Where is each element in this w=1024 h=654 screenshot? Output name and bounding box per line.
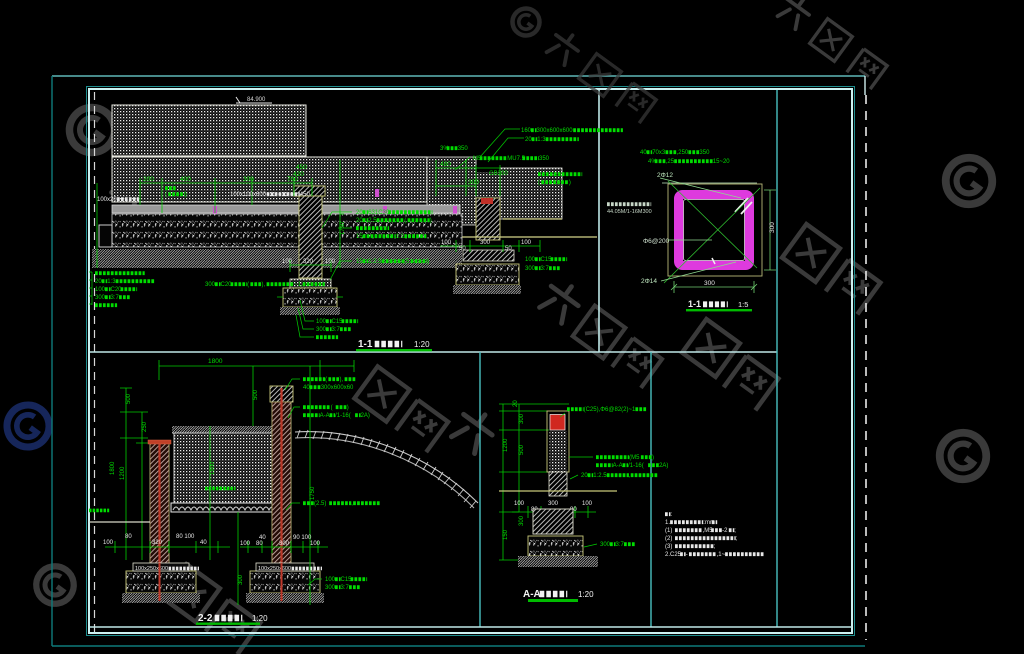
svg-text:100: 100 (325, 259, 336, 265)
svg-text:(2): (2) (665, 536, 672, 542)
svg-text:(M5: (M5 (629, 455, 640, 461)
svg-text:1-1: 1-1 (688, 299, 701, 309)
svg-text:A-A: A-A (613, 463, 623, 469)
svg-text:): ) (185, 192, 187, 198)
svg-text:-: - (686, 552, 688, 558)
svg-text:300: 300 (769, 222, 776, 233)
svg-text:350: 350 (458, 146, 469, 152)
svg-text:C15: C15 (341, 577, 353, 583)
svg-text:2Φ12: 2Φ12 (657, 172, 673, 179)
svg-text:1:1: 1:1 (396, 234, 405, 240)
svg-text:20: 20 (525, 137, 532, 143)
svg-text:(: ( (404, 218, 406, 224)
svg-text:(1): (1) (665, 528, 672, 534)
svg-text:500: 500 (253, 389, 259, 400)
svg-text:,25: ,25 (666, 159, 675, 165)
svg-text:300: 300 (205, 282, 216, 288)
svg-text:),: ), (262, 282, 266, 288)
svg-text:20: 20 (95, 279, 102, 285)
svg-text:300x600x60: 300x600x60 (321, 385, 354, 391)
svg-text:1:5: 1:5 (738, 300, 748, 309)
svg-text:480: 480 (440, 161, 451, 168)
svg-text:2A): 2A) (361, 413, 370, 419)
svg-text:3:7: 3:7 (541, 266, 550, 272)
svg-text:Φ6@200: Φ6@200 (643, 238, 670, 245)
svg-text:1:20: 1:20 (252, 614, 268, 623)
svg-text:),: ), (340, 377, 344, 383)
svg-text:20: 20 (356, 218, 363, 224)
svg-text:450: 450 (300, 192, 311, 198)
svg-text:A-A: A-A (320, 413, 330, 419)
svg-text:320: 320 (152, 540, 163, 546)
svg-text:(: ( (331, 405, 333, 411)
svg-text:80: 80 (256, 541, 263, 547)
svg-text:C15: C15 (541, 257, 553, 263)
svg-text:50: 50 (459, 246, 466, 252)
svg-text:2.C25: 2.C25 (665, 552, 682, 558)
svg-text:100: 100 (95, 287, 106, 293)
svg-text:84.900: 84.900 (247, 97, 266, 103)
svg-text:3:7: 3:7 (111, 295, 120, 301)
svg-text:1-1: 1-1 (358, 339, 373, 350)
svg-text:500: 500 (519, 444, 525, 455)
svg-text:300: 300 (243, 176, 254, 183)
svg-text:320: 320 (303, 259, 314, 265)
svg-text:300: 300 (519, 413, 525, 424)
svg-text:40: 40 (640, 150, 647, 156)
svg-text:500: 500 (126, 393, 132, 404)
svg-text:-2: -2 (722, 528, 728, 534)
svg-text:631C30: 631C30 (368, 210, 390, 216)
svg-text:3:7: 3:7 (616, 542, 625, 548)
svg-text:(: ( (165, 192, 167, 198)
svg-text:(5: (5 (404, 259, 410, 265)
svg-text:C20: C20 (221, 282, 233, 288)
svg-text:(: ( (325, 377, 327, 383)
svg-text:3:7: 3:7 (332, 327, 341, 333)
svg-text:,250: ,250 (677, 150, 689, 156)
svg-text:100: 100 (310, 541, 321, 547)
svg-text:100: 100 (521, 240, 532, 246)
svg-text:1200: 1200 (120, 466, 126, 480)
svg-text:C20: C20 (111, 287, 123, 293)
svg-text:420: 420 (293, 171, 304, 178)
svg-text:100: 100 (316, 319, 327, 325)
svg-text:300: 300 (548, 501, 559, 507)
svg-text:3:7: 3:7 (341, 585, 350, 591)
svg-text:): ) (569, 180, 571, 186)
svg-text:2A): 2A) (659, 463, 668, 469)
svg-text:300: 300 (316, 327, 327, 333)
svg-text:C15: C15 (332, 319, 344, 325)
svg-text:300: 300 (600, 542, 611, 548)
svg-text:,1~: ,1~ (717, 552, 726, 558)
svg-text:): ) (347, 405, 349, 411)
svg-text:15: 15 (356, 259, 363, 265)
svg-text:): ) (652, 455, 654, 461)
svg-text:2-2: 2-2 (198, 613, 213, 624)
svg-text:300: 300 (468, 179, 479, 186)
svg-text:70x3: 70x3 (652, 150, 666, 156)
svg-text:350: 350 (699, 150, 710, 156)
svg-text:300: 300 (704, 280, 715, 287)
svg-text:1:3: 1:3 (537, 137, 546, 143)
svg-text:100: 100 (282, 259, 293, 265)
svg-text:100x250x600: 100x250x600 (135, 566, 168, 572)
svg-text:15: 15 (356, 234, 363, 240)
svg-text:/1-16(: /1-16( (628, 463, 644, 469)
svg-text:300: 300 (480, 240, 491, 246)
svg-text:1800: 1800 (208, 358, 223, 365)
svg-text:1:3: 1:3 (107, 279, 116, 285)
svg-text:300x600x600: 300x600x600 (537, 128, 574, 134)
svg-text:20: 20 (513, 400, 519, 407)
svg-text:200: 200 (143, 176, 154, 183)
svg-text:100: 100 (582, 501, 593, 507)
svg-text:100x100x600: 100x100x600 (230, 192, 267, 198)
svg-text:20: 20 (581, 473, 588, 479)
svg-text:100: 100 (325, 577, 336, 583)
svg-text:40: 40 (303, 385, 310, 391)
svg-text:20: 20 (356, 210, 363, 216)
svg-text:300: 300 (519, 515, 525, 526)
svg-text:300: 300 (279, 541, 290, 547)
svg-text:/1-16(: /1-16( (335, 413, 351, 419)
svg-text:1800: 1800 (210, 461, 216, 475)
svg-text:): ) (430, 218, 432, 224)
svg-text:250: 250 (142, 421, 148, 432)
svg-text:100: 100 (514, 501, 525, 507)
svg-text:1:20: 1:20 (578, 590, 594, 599)
svg-text:150: 150 (503, 529, 509, 540)
svg-text:100: 100 (240, 541, 251, 547)
svg-text:1:20: 1:20 (414, 340, 430, 349)
svg-text:44.05M/1-16M300: 44.05M/1-16M300 (607, 209, 652, 215)
svg-text:(: ( (247, 282, 249, 288)
svg-text:80: 80 (125, 534, 132, 540)
svg-text:100: 100 (525, 257, 536, 263)
svg-text:(2.5): (2.5) (314, 501, 326, 507)
svg-text:100: 100 (441, 240, 452, 246)
svg-text:40: 40 (200, 540, 207, 546)
svg-text:GB300: GB300 (489, 171, 508, 177)
svg-text:50: 50 (505, 246, 512, 252)
svg-text:1750: 1750 (310, 486, 316, 500)
svg-text:(: ( (538, 180, 540, 186)
svg-text:80 100: 80 100 (176, 534, 195, 540)
svg-text:2Φ14: 2Φ14 (641, 278, 657, 285)
svg-text:160: 160 (521, 128, 532, 134)
svg-text:1.: 1. (665, 520, 670, 526)
svg-text:400: 400 (180, 176, 191, 183)
svg-text:1:2.5: 1:2.5 (368, 259, 382, 265)
svg-text:1200: 1200 (503, 438, 509, 452)
svg-text:(3): (3) (665, 544, 672, 550)
svg-text:450: 450 (296, 164, 307, 171)
svg-text:): ) (427, 259, 429, 265)
svg-text:300: 300 (95, 295, 106, 301)
svg-text:1:2.5: 1:2.5 (593, 473, 607, 479)
svg-text:300: 300 (325, 585, 336, 591)
svg-text:~1,: ~1, (294, 282, 303, 288)
svg-text:1800: 1800 (110, 461, 116, 475)
svg-text:100x250x600: 100x250x600 (258, 566, 291, 572)
svg-text:2.5: 2.5 (368, 218, 377, 224)
svg-text:100: 100 (103, 540, 114, 546)
svg-text:350: 350 (539, 156, 550, 162)
svg-text:300: 300 (525, 266, 536, 272)
svg-text:100x20: 100x20 (97, 197, 117, 203)
svg-text:300: 300 (238, 574, 244, 585)
svg-text:15~20: 15~20 (713, 159, 731, 165)
svg-text:A-A: A-A (523, 589, 541, 600)
svg-text:(C25),Φ6@82(2)~1: (C25),Φ6@82(2)~1 (584, 407, 636, 413)
